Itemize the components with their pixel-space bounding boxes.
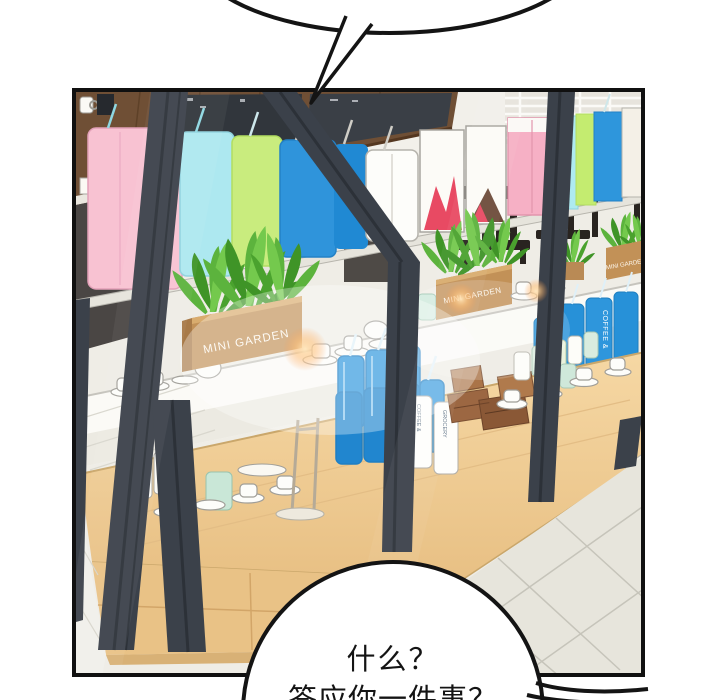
comic-page: MINI GARDEN MINI GARDEN [0,0,720,700]
offpanel-tail-marks [527,683,648,700]
mug [80,97,93,113]
comic-artwork: MINI GARDEN MINI GARDEN [0,0,720,700]
speech-text-line-2: 答应你一件事？ [288,683,498,700]
speech-text-line-1: 什么？ [346,643,439,676]
blue-tumbler [594,112,622,201]
cream-box [622,108,642,197]
speech-bubble-top [222,0,558,103]
blue-tumbler-label: COFFEE & [601,310,608,349]
lime-tumbler [576,114,596,205]
